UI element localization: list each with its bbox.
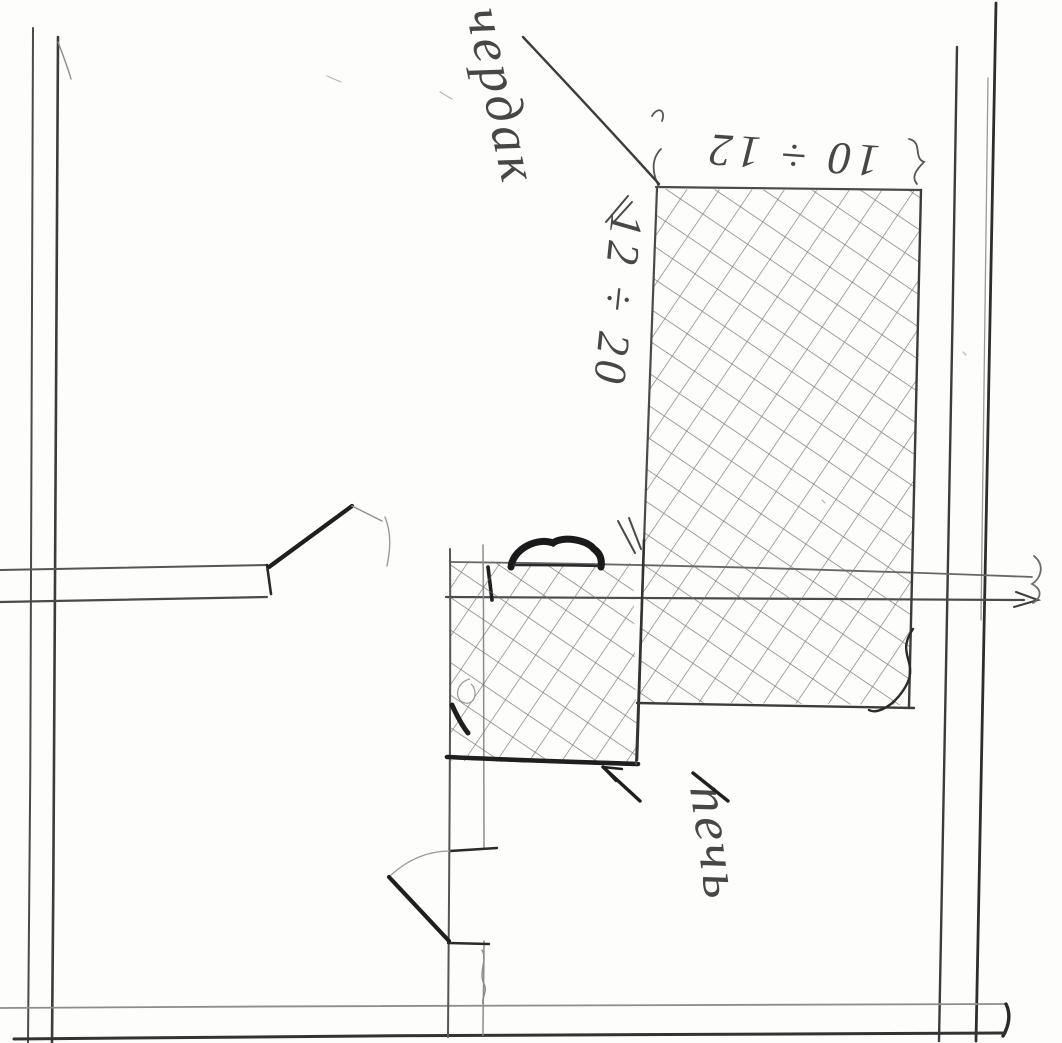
wall-end-squiggle [1032,556,1041,603]
left-wall [28,28,71,1043]
dim-tick-right [909,139,924,184]
dimension-width: 10 ÷ 12 [652,110,924,187]
door-swing-arc [385,517,390,566]
stray-mark [652,110,663,121]
bottom-wall [0,1004,1009,1039]
stove-plan-drawing: 10 ÷ 12 12 ÷ 20 чердак печь [0,0,1062,1043]
door-jamb-left [267,565,271,594]
door-bottom [389,851,485,1004]
door-leaf [389,877,449,941]
attic-label-text: чердак [454,2,550,190]
door-leaf [269,506,352,567]
stove-damper-base [513,565,599,566]
door-jamb-bottom [448,943,489,944]
dimension-height-text: 12 ÷ 20 [584,211,653,391]
attic-label-group: чердак [454,2,659,190]
door-swing-arc [391,851,450,875]
dimension-width-text: 10 ÷ 12 [703,124,881,187]
right-wall [939,3,996,1041]
door-jamb-top [450,848,497,851]
stove-label-group: печь [603,767,754,905]
stove-label-text: печь [678,781,754,905]
stove-hatched-block [447,563,638,764]
scanned-sketch-sheet: 10 ÷ 12 12 ÷ 20 чердак печь [0,0,1062,1043]
dimension-height: 12 ÷ 20 [584,196,653,553]
chimney-hatched-block [636,187,921,764]
